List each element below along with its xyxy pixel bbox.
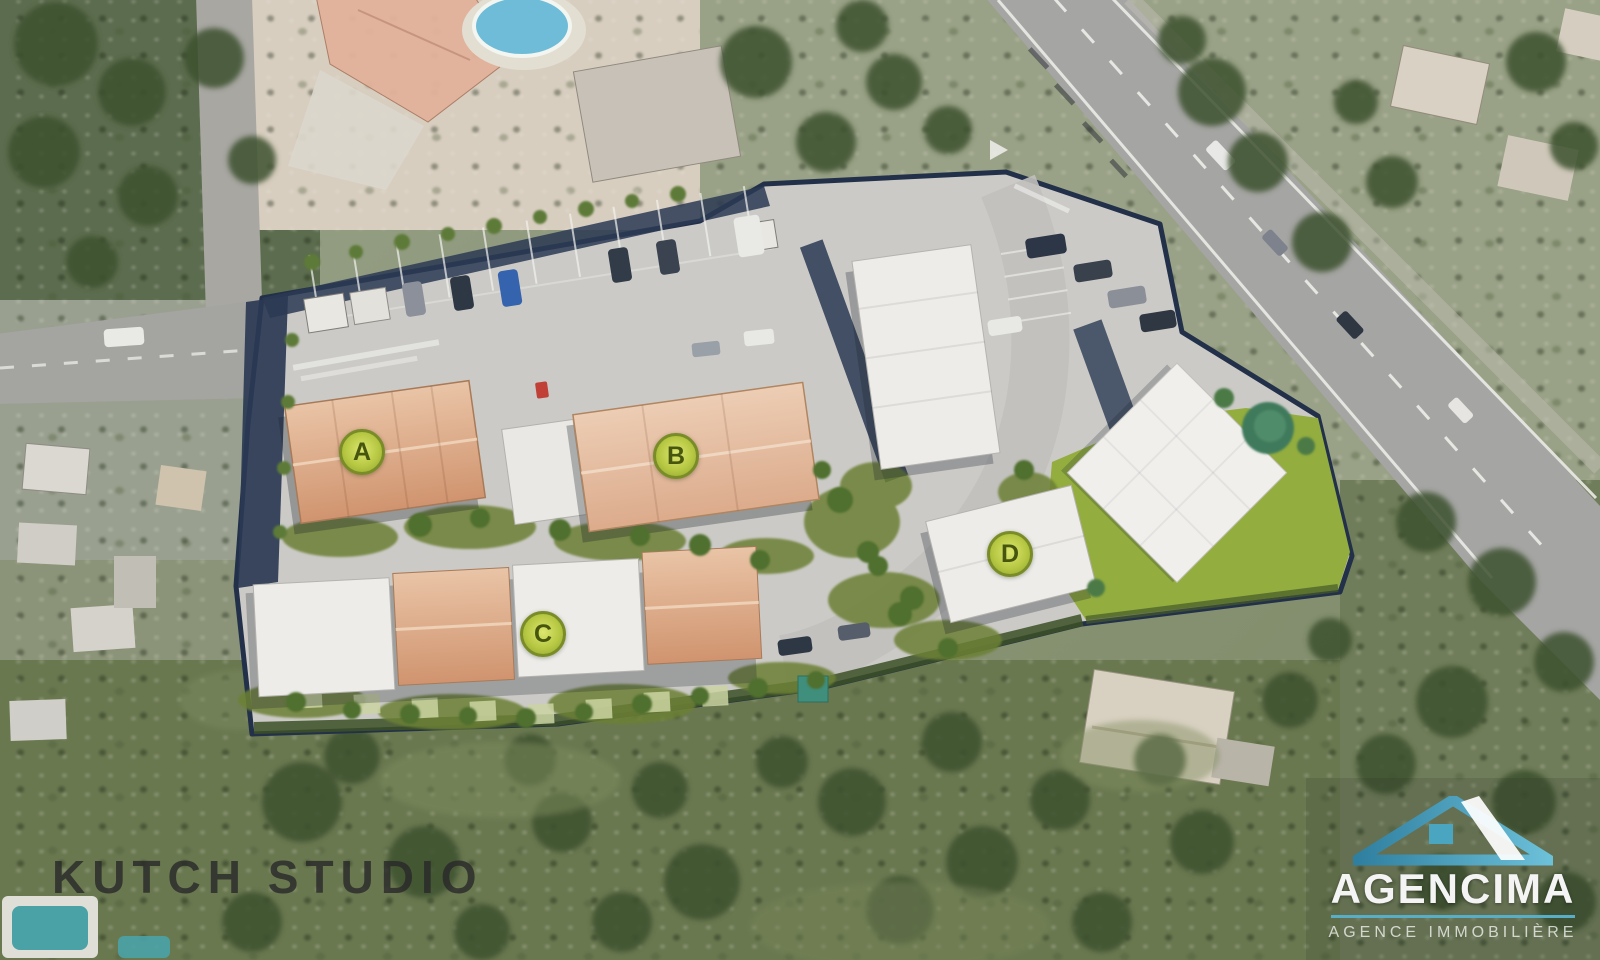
building-marker-b[interactable]: B <box>653 433 699 479</box>
agency-logo: AGENCIMA AGENCE IMMOBILIÈRE <box>1306 778 1600 960</box>
site-plan <box>103 172 1352 734</box>
brand-tagline: AGENCE IMMOBILIÈRE <box>1329 924 1578 942</box>
logo-roof-icon <box>1353 796 1553 866</box>
brand-underline <box>1331 915 1575 918</box>
aerial-site-plan: A B C D KUTCH STUDIO AGENCIMA AGENCE IMM… <box>0 0 1600 960</box>
brand-name: AGENCIMA <box>1331 868 1576 910</box>
studio-watermark: KUTCH STUDIO <box>52 850 484 904</box>
building-marker-d[interactable]: D <box>987 531 1033 577</box>
building-marker-c[interactable]: C <box>520 611 566 657</box>
building-marker-a[interactable]: A <box>339 429 385 475</box>
